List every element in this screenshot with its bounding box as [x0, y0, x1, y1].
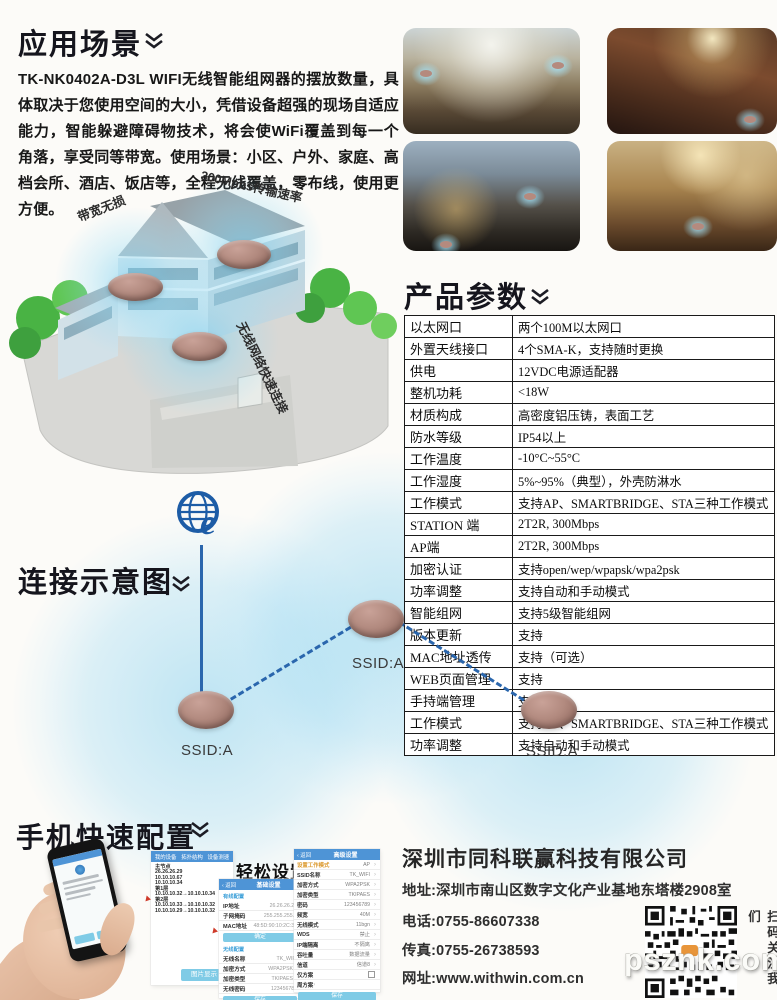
- back-button: ‹ 返回: [222, 881, 236, 889]
- setting-row-checkbox: 仅方案: [294, 970, 380, 980]
- table-row: 外置天线接口4个SMA-K，支持随时更换: [405, 338, 775, 360]
- tab-topology: 拓扑结构: [180, 853, 203, 861]
- setting-row: 子网掩码255.255.255.0: [219, 911, 301, 921]
- section-title-application-scenarios: 应用场景: [18, 31, 142, 60]
- table-row: 供电12VDC电源适配器: [405, 360, 775, 382]
- section-title-product-parameters: 产品参数: [404, 284, 528, 313]
- screen-title: 基础设置: [239, 880, 298, 889]
- setting-row: 无线模式11bgn: [294, 920, 380, 930]
- wifi-device: [348, 600, 404, 638]
- section-title-connection-diagram: 连接示意图: [18, 569, 173, 598]
- table-row: STATION 端2T2R, 300Mbps: [405, 514, 775, 536]
- table-row: AP端2T2R, 300Mbps: [405, 536, 775, 558]
- checkbox: [368, 971, 375, 978]
- table-row: 智能组网支持5级智能组网: [405, 602, 775, 624]
- setting-row: IP端隔离不隔离: [294, 940, 380, 950]
- app-logo: [74, 864, 86, 876]
- double-chevron-down-icon: [143, 33, 165, 54]
- setting-row: SSID名称TK_WIFI: [294, 870, 380, 880]
- setting-row: 加密类型TKIPAES: [294, 890, 380, 900]
- device-glow-marker: [735, 108, 765, 132]
- house-illustration: 300Mpbs传输速率 带宽无损 无线网络快速连接: [0, 168, 400, 490]
- table-row: 工作温度-10°C~55°C: [405, 448, 775, 470]
- app-header-bar: [52, 849, 102, 867]
- tab-my-devices: 我的设备: [154, 853, 177, 861]
- save-button: 保存: [223, 996, 297, 1000]
- app-screenshot-basic-settings: ‹ 返回 基础设置 有线配置 IP地址26.26.26.29 子网掩码255.2…: [219, 879, 301, 998]
- wifi-device: [172, 332, 227, 361]
- brochure-page: 应用场景 TK-NK0402A-D3L WIFI无线智能组网器的摆放数量，具体取…: [0, 0, 777, 1000]
- setting-row: 频宽40M: [294, 910, 380, 920]
- table-row: 工作模式支持AP、SMARTBRIDGE、STA三种工作模式: [405, 492, 775, 514]
- device-glow-marker: [411, 62, 441, 86]
- ssid-label: SSID:A: [352, 655, 404, 672]
- wifi-device: [108, 273, 163, 301]
- company-name: 深圳市同科联赢科技有限公司: [402, 843, 777, 873]
- setting-row: 无线密码123456789: [219, 984, 301, 994]
- internet-link-line: [200, 545, 203, 692]
- photo-restaurant-room: [607, 28, 777, 134]
- setting-row: WDS禁止: [294, 930, 380, 940]
- double-chevron-down-icon: [529, 289, 551, 310]
- internet-globe-icon: e: [175, 487, 227, 550]
- tab-speed-test: 设备测速: [207, 853, 230, 861]
- table-row: 材质构成高密度铝压铸，表面工艺: [405, 404, 775, 426]
- double-chevron-down-icon: [189, 822, 211, 843]
- back-button: ‹ 返回: [297, 851, 311, 859]
- setting-row: 加密类型TKIPAES: [219, 974, 301, 984]
- app-button: [74, 932, 95, 944]
- hand-holding-phone-photo: [16, 840, 168, 1000]
- ssid-label: SSID:A: [181, 742, 233, 759]
- spec-table: 以太网口两个100M以太网口 外置天线接口4个SMA-K，支持随时更换 供电12…: [404, 315, 775, 756]
- wifi-device: [178, 691, 234, 729]
- table-row: 以太网口两个100M以太网口: [405, 316, 775, 338]
- table-row: 工作湿度5%~95%（典型），外壳防淋水: [405, 470, 775, 492]
- photo-villa-exterior: [403, 141, 580, 251]
- setting-row: 周方案: [294, 980, 380, 990]
- svg-text:e: e: [200, 502, 216, 542]
- wifi-device: [521, 691, 577, 729]
- table-row: WEB页面管理支持: [405, 668, 775, 690]
- photo-hotel-lobby: [403, 28, 580, 134]
- setting-row: 设置工作模式AP: [294, 860, 380, 870]
- device-glow-marker: [683, 215, 713, 239]
- setting-row: 加密方式WPA2PSK: [219, 964, 301, 974]
- table-row: 工作模式支持AP、SMARTBRIDGE、STA三种工作模式: [405, 712, 775, 734]
- photo-teahouse-interior: [607, 141, 777, 251]
- setting-row: 加密方式WPA2PSK: [294, 880, 380, 890]
- device-glow-marker: [543, 54, 573, 78]
- app-screenshot-advanced-settings: ‹ 返回 高级设置 设置工作模式AP SSID名称TK_WIFI 加密方式WPA…: [294, 849, 380, 992]
- table-row: 加密认证支持open/wep/wpapsk/wpa2psk: [405, 558, 775, 580]
- table-row: 整机功耗<18W: [405, 382, 775, 404]
- setting-row: MAC地址48:5D:90:10:2C:30: [219, 921, 301, 931]
- save-button: 保存: [298, 992, 376, 1000]
- setting-row: IP地址26.26.26.29: [219, 901, 301, 911]
- table-row: 功率调整支持自动和手动模式: [405, 580, 775, 602]
- scan-watermark: psznk.com: [624, 942, 777, 978]
- setting-row: 无线名称TK_WIFI: [219, 954, 301, 964]
- ssid-label: SSID:A: [526, 743, 578, 760]
- setting-row: 信道信道8: [294, 960, 380, 970]
- setting-row: 密码123456789: [294, 900, 380, 910]
- setting-row: 吞吐量数据流量: [294, 950, 380, 960]
- table-row: 防水等级IP54以上: [405, 426, 775, 448]
- table-row: 手持端管理支持: [405, 690, 775, 712]
- table-row: 版本更新支持: [405, 624, 775, 646]
- confirm-button: 确定: [223, 933, 297, 942]
- app-tab-bar: 我的设备 拓扑结构 设备测速: [151, 851, 233, 862]
- double-chevron-down-icon: [170, 576, 192, 597]
- table-row: MAC地址透传支持（可选）: [405, 646, 775, 668]
- device-glow-marker: [515, 185, 545, 209]
- wifi-device: [217, 240, 271, 269]
- company-address: 地址:深圳市南山区数字文化产业基地东塔楼2908室: [402, 879, 777, 900]
- screen-title: 高级设置: [314, 850, 377, 859]
- table-row: 功率调整支持自动和手动模式: [405, 734, 775, 756]
- device-glow-marker: [431, 233, 461, 251]
- section-wired-config: 有线配置: [219, 890, 301, 901]
- section-wireless-config: 无线配置: [219, 943, 301, 954]
